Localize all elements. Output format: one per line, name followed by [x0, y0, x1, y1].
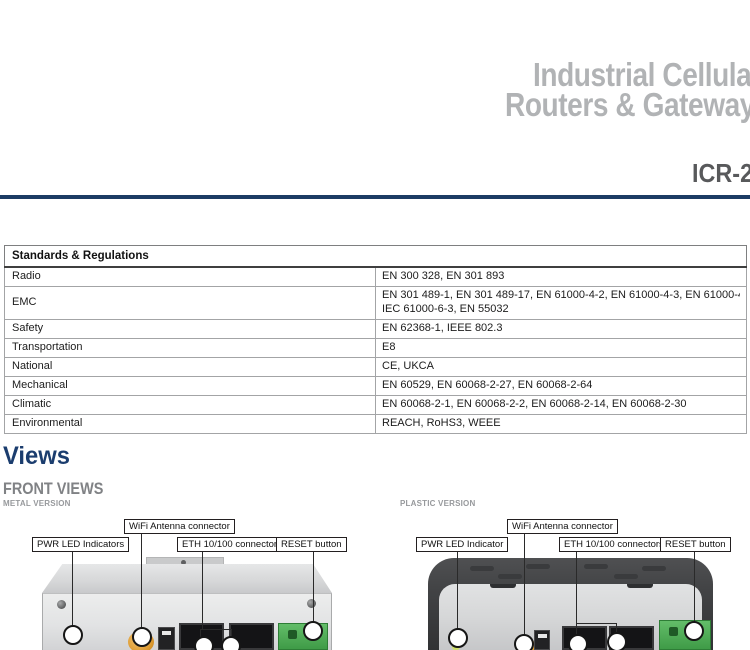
plastic-version-label: PLASTIC VERSION	[400, 499, 475, 508]
row-value: CE, UKCA	[382, 360, 740, 374]
datasheet-page: Industrial Cellular Routers & Gateways I…	[0, 0, 750, 650]
row-label: Climatic	[5, 395, 376, 414]
plastic-wifi-antenna-callout-label: WiFi Antenna connector	[507, 519, 618, 534]
table-row: Environmental REACH, RoHS3, WEEE	[5, 414, 747, 433]
plastic-wifi-callout-line	[524, 532, 525, 635]
vent-slot	[470, 566, 494, 571]
metal-reset-callout-line	[313, 551, 314, 622]
plastic-reset-callout-line	[694, 551, 695, 622]
metal-pwr-led-callout-label: PWR LED Indicators	[32, 537, 129, 552]
plastic-pwr-led-callout-label: PWR LED Indicator	[416, 537, 508, 552]
plastic-reset-callout-label: RESET button	[660, 537, 731, 552]
plastic-reset-callout-marker	[684, 621, 704, 641]
terminal-slot	[288, 630, 297, 639]
metal-wifi-callout-marker	[132, 627, 152, 647]
vent-slot	[614, 574, 638, 579]
row-label: National	[5, 357, 376, 376]
plastic-eth-callout-line	[576, 551, 577, 623]
table-header-cell: Standards & Regulations	[5, 246, 747, 268]
table-row: Climatic EN 60068-2-1, EN 60068-2-2, EN …	[5, 395, 747, 414]
table-header-row: Standards & Regulations	[5, 246, 747, 268]
usb-port	[534, 630, 550, 650]
usb-port-blade	[538, 634, 547, 638]
metal-wifi-callout-line	[141, 532, 142, 628]
row-value: EN 62368-1, IEEE 802.3	[382, 322, 740, 336]
row-value: E8	[382, 341, 740, 355]
plastic-eth2-callout-marker	[607, 632, 627, 650]
metal-pwr-callout-marker	[63, 625, 83, 645]
row-label: Transportation	[5, 338, 376, 357]
section-title-views: Views	[3, 442, 70, 471]
metal-pwr-callout-line	[72, 551, 73, 627]
metal-wifi-antenna-callout-label: WiFi Antenna connector	[124, 519, 235, 534]
table-row: Mechanical EN 60529, EN 60068-2-27, EN 6…	[5, 376, 747, 395]
metal-eth-callout-bracket	[200, 629, 232, 630]
subsection-title-front-views: FRONT VIEWS	[3, 479, 103, 499]
vent-slot	[498, 574, 522, 579]
panel-notch	[627, 584, 653, 588]
row-label: Environmental	[5, 414, 376, 433]
plastic-wifi-callout-marker	[514, 634, 534, 650]
standards-regulations-table: Standards & Regulations Radio EN 300 328…	[4, 245, 747, 434]
metal-reset-callout-label: RESET button	[276, 537, 347, 552]
table-row: EMC EN 301 489-1, EN 301 489-17, EN 6100…	[5, 287, 747, 320]
plastic-pwr-callout-line	[457, 551, 458, 629]
row-label: Safety	[5, 319, 376, 338]
header-divider-rule	[0, 195, 750, 199]
metal-eth2-callout-marker	[221, 636, 241, 650]
row-label: EMC	[5, 287, 376, 320]
table-row: Radio EN 300 328, EN 301 893	[5, 267, 747, 286]
metal-version-label: METAL VERSION	[3, 499, 71, 508]
chassis-top-face	[42, 564, 332, 593]
screw-icon	[57, 600, 66, 609]
screw-icon	[307, 599, 316, 608]
table-row: National CE, UKCA	[5, 357, 747, 376]
vent-slot	[526, 564, 550, 569]
metal-eth-callout-line	[202, 551, 203, 629]
panel-notch	[490, 584, 516, 588]
row-value: EN 60068-2-1, EN 60068-2-2, EN 60068-2-1…	[382, 398, 740, 412]
vent-slot	[584, 564, 608, 569]
row-value: REACH, RoHS3, WEEE	[382, 417, 740, 431]
metal-reset-callout-marker	[303, 621, 323, 641]
metal-eth-callout-label: ETH 10/100 connectors	[177, 537, 287, 552]
table-row: Transportation E8	[5, 338, 747, 357]
usb-port-blade	[162, 631, 171, 635]
metal-router-front-illustration	[42, 557, 332, 650]
vent-slot	[642, 566, 666, 571]
usb-port	[158, 627, 175, 650]
plastic-eth-callout-bracket	[576, 623, 617, 624]
terminal-slot	[669, 627, 678, 636]
row-label: Mechanical	[5, 376, 376, 395]
row-label: Radio	[5, 267, 376, 286]
row-value: EN 300 328, EN 301 893	[382, 270, 740, 284]
row-value: EN 60529, EN 60068-2-27, EN 60068-2-64	[382, 379, 740, 393]
table-row: Safety EN 62368-1, IEEE 802.3	[5, 319, 747, 338]
row-value: EN 301 489-1, EN 301 489-17, EN 61000-4-…	[382, 289, 740, 317]
doc-title-line-2: Routers & Gateways	[505, 86, 750, 124]
plastic-pwr-callout-marker	[448, 628, 468, 648]
product-model-code: ICR-27	[692, 158, 750, 189]
plastic-eth-callout-label: ETH 10/100 connectors	[559, 537, 669, 552]
plastic-eth1-callout-marker	[568, 634, 588, 650]
metal-eth1-callout-marker	[194, 636, 214, 650]
